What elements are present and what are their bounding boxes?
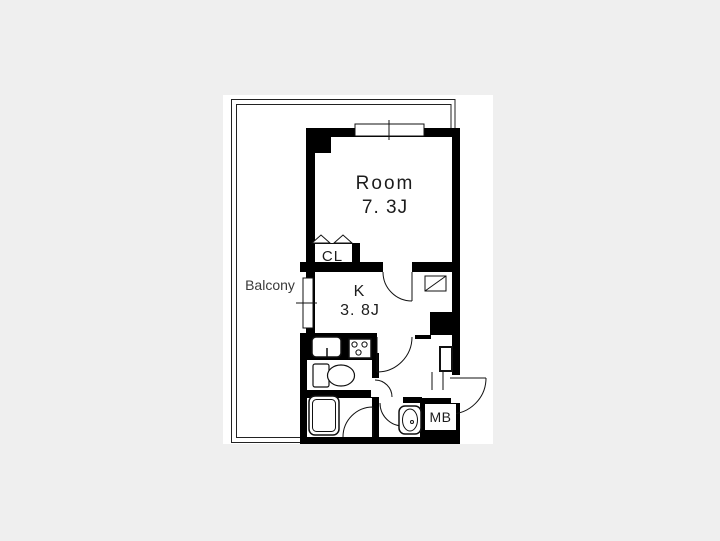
bathtub-icon bbox=[309, 396, 339, 435]
entry-step-lines bbox=[432, 372, 443, 390]
kitchen-size-label: 3. 8J bbox=[319, 303, 401, 319]
shoe-cabinet-icon bbox=[440, 347, 452, 371]
stove-icon bbox=[349, 339, 371, 358]
toilet-icon bbox=[313, 364, 355, 387]
room-label: Room bbox=[324, 174, 446, 193]
room-size-label: 7. 3J bbox=[324, 198, 446, 217]
washbasin-icon bbox=[399, 406, 421, 434]
pipe-shaft-icon bbox=[425, 276, 446, 291]
floorplan-sheet: Room 7. 3J CL Balcony K 3. 8J MB bbox=[223, 95, 493, 444]
meterbox-label: MB bbox=[420, 410, 461, 424]
sink-icon bbox=[312, 337, 341, 357]
kitchen-label: K bbox=[318, 284, 400, 300]
balcony-label: Balcony bbox=[229, 278, 311, 292]
page-background: Room 7. 3J CL Balcony K 3. 8J MB bbox=[0, 0, 720, 541]
closet-label: CL bbox=[312, 249, 353, 264]
bathroom-door-arc bbox=[343, 407, 373, 437]
hall-door-arc bbox=[377, 337, 412, 372]
closet-doors-icon bbox=[312, 235, 352, 244]
floorplan-drawing bbox=[223, 95, 493, 444]
